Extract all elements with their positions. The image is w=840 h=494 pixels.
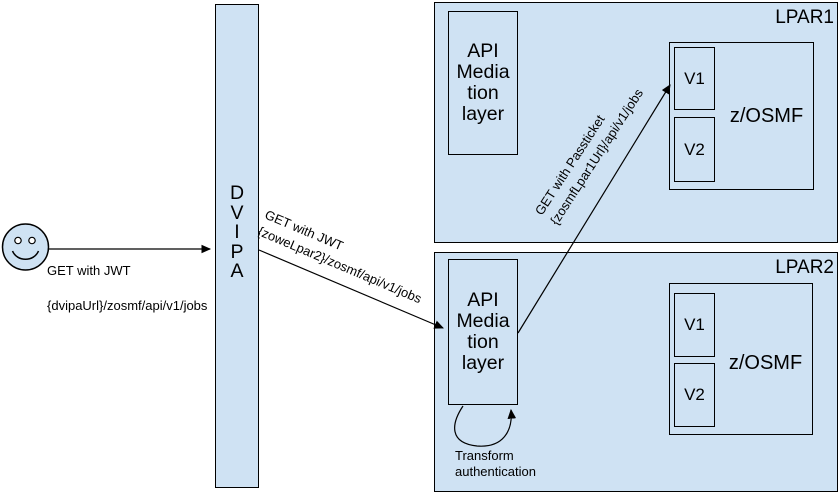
lpar2-zosmf-v1-box: V1 xyxy=(674,293,715,357)
lpar2-api-mediation-layer-label: API Media tion layer xyxy=(456,290,509,374)
lpar2-zosmf-v2-box: V2 xyxy=(674,363,715,427)
user-right-eye xyxy=(29,237,35,243)
user-face xyxy=(3,224,49,270)
diagram-canvas: D V I P A LPAR1 LPAR2 API Media tion lay… xyxy=(0,0,840,494)
user-icon xyxy=(3,224,49,270)
user-smile xyxy=(13,251,39,259)
lpar1-api-mediation-layer-box: API Media tion layer xyxy=(448,11,518,155)
lpar2-zosmf-v1-label: V1 xyxy=(684,315,705,335)
route-to-lpar2-label: GET with JWT {zoweLpar2}/zosmf/api/v1/jo… xyxy=(255,206,431,308)
lpar1-zosmf-v2-box: V2 xyxy=(674,117,715,182)
transform-authentication-note: Transform authentication xyxy=(455,448,536,479)
lpar1-api-mediation-layer-label: API Media tion layer xyxy=(456,41,509,125)
lpar2-zosmf-v2-label: V2 xyxy=(684,385,705,405)
lpar1-title: LPAR1 xyxy=(634,7,834,29)
dvipa-label: D V I P A xyxy=(215,184,259,282)
lpar2-title: LPAR2 xyxy=(634,257,834,279)
user-request-line1: GET with JWT xyxy=(47,263,131,278)
lpar1-zosmf-v1-label: V1 xyxy=(684,69,705,89)
user-left-eye xyxy=(15,237,21,243)
lpar1-zosmf-label: z/OSMF xyxy=(719,104,814,128)
lpar1-zosmf-v2-label: V2 xyxy=(684,140,705,160)
lpar2-api-mediation-layer-box: API Media tion layer xyxy=(448,259,518,405)
user-request-line2: {dvipaUrl}/zosmf/api/v1/jobs xyxy=(47,298,207,313)
lpar1-zosmf-v1-box: V1 xyxy=(674,47,715,110)
lpar2-zosmf-label: z/OSMF xyxy=(718,351,813,375)
user-request-label: GET with JWT {dvipaUrl}/zosmf/api/v1/job… xyxy=(47,262,207,315)
